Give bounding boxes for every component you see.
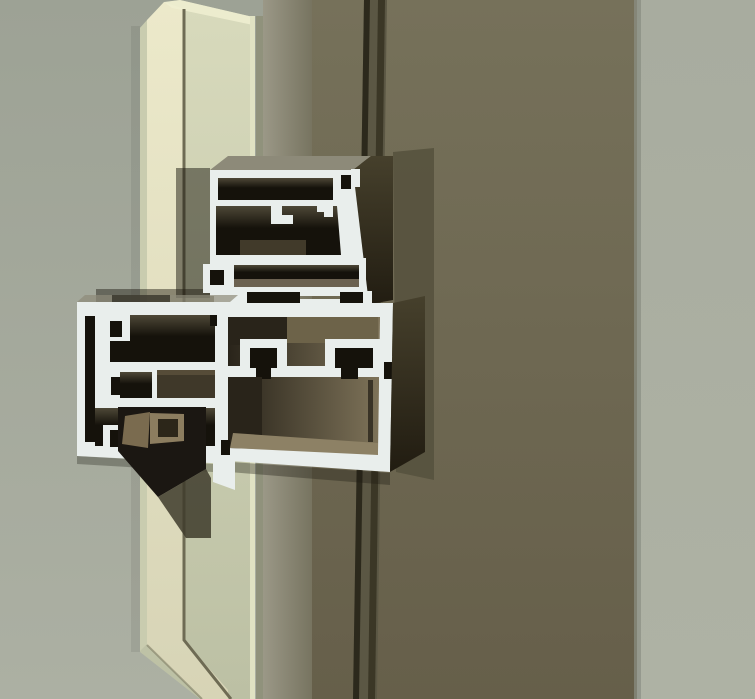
boss-left-wall-a <box>240 348 250 367</box>
nose-face-left <box>122 412 150 448</box>
transom-corner-nub <box>351 169 360 187</box>
photo-curtain-wall-profile <box>0 0 755 699</box>
boss-right-center <box>335 348 373 368</box>
transom-chamber-top <box>218 178 333 200</box>
nose-inset <box>158 419 178 437</box>
vent-stub-notch <box>111 377 120 395</box>
vent-top-shadow-mark <box>112 295 170 303</box>
boss-right-wall-b <box>373 348 380 367</box>
boss-right-wall-a <box>325 348 335 367</box>
box-corner-notch <box>221 440 230 455</box>
vent-outer-channel <box>85 316 95 442</box>
transom-chamber-reflection <box>240 240 306 255</box>
boss-left-center <box>250 348 277 368</box>
scene-svg <box>0 0 755 699</box>
mullion-box-profile-cutaway <box>213 296 425 490</box>
vent-bracket-topleft-notch <box>110 321 122 337</box>
boss-right-slot <box>341 366 358 379</box>
boss-right-cap <box>325 339 380 349</box>
transom-lower-chamber <box>234 265 359 281</box>
background-right-wall <box>641 0 755 699</box>
transom-screw-port <box>341 175 351 189</box>
box-side-face <box>390 296 425 472</box>
box-inner-corner-line <box>368 380 373 442</box>
transom-profile-cutaway <box>203 156 393 308</box>
boss-left-wall-b <box>277 348 287 367</box>
transom-lower-innerwall <box>234 279 359 287</box>
mullion-face-edge <box>634 0 641 699</box>
transom-top-face <box>210 156 371 170</box>
vent-chamber-b <box>120 372 152 398</box>
boss-left-cap <box>240 339 287 349</box>
transom-left-bracket-notch <box>210 270 224 285</box>
vent-chamber-b2-highlight <box>157 370 215 375</box>
